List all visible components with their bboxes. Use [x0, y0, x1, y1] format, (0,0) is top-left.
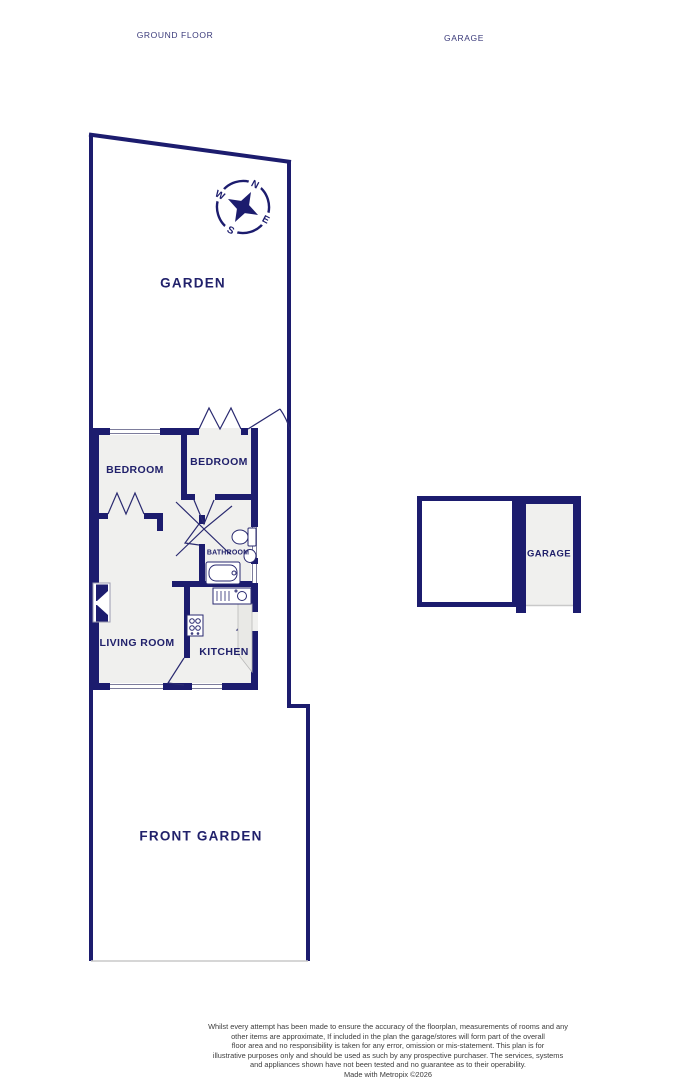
- disclaimer-line: Whilst every attempt has been made to en…: [168, 1022, 608, 1032]
- toilet-fixture: [232, 528, 256, 546]
- floorplan-drawing: N E S W: [0, 0, 674, 1080]
- garage-room-label: GARAGE: [527, 549, 571, 560]
- floorplan-page: N E S W GROUND FLOOR GARAGE GARDEN BEDRO…: [0, 0, 674, 1080]
- garden-door-swing: [248, 409, 290, 430]
- disclaimer-line: other items are approximate, If included…: [168, 1032, 608, 1042]
- disclaimer-line: illustrative purposes only and should be…: [168, 1051, 608, 1061]
- disclaimer-text: Whilst every attempt has been made to en…: [168, 1022, 608, 1080]
- kitchen-label: KITCHEN: [199, 646, 248, 658]
- front-garden-label: FRONT GARDEN: [139, 829, 262, 844]
- page-title-ground-floor: GROUND FLOOR: [137, 30, 214, 40]
- disclaimer-line: floor area and no responsibility is take…: [168, 1041, 608, 1051]
- page-title-garage: GARAGE: [444, 33, 484, 43]
- bedroom1-label: BEDROOM: [106, 464, 164, 476]
- hob-fixture: [187, 615, 203, 636]
- disclaimer-credit: Made with Metropix ©2026: [168, 1070, 608, 1080]
- fireplace-fixture: [93, 583, 110, 622]
- disclaimer-line: and appliances shown have not been teste…: [168, 1060, 608, 1070]
- kitchen-sink-fixture: [213, 588, 251, 604]
- bathroom-label: BATHROOM: [207, 550, 249, 557]
- compass-rose-icon: N E S W: [198, 162, 287, 251]
- plot-boundary-right: [287, 161, 310, 961]
- living-room-label: LIVING ROOM: [100, 637, 175, 649]
- french-door-swing: [199, 408, 241, 429]
- bedroom2-label: BEDROOM: [190, 456, 248, 468]
- driveway-outline: [420, 499, 515, 605]
- compass-star: [220, 184, 266, 230]
- garden-label: GARDEN: [160, 276, 226, 291]
- plot-boundary-top: [89, 135, 291, 163]
- bathtub-fixture: [206, 562, 240, 584]
